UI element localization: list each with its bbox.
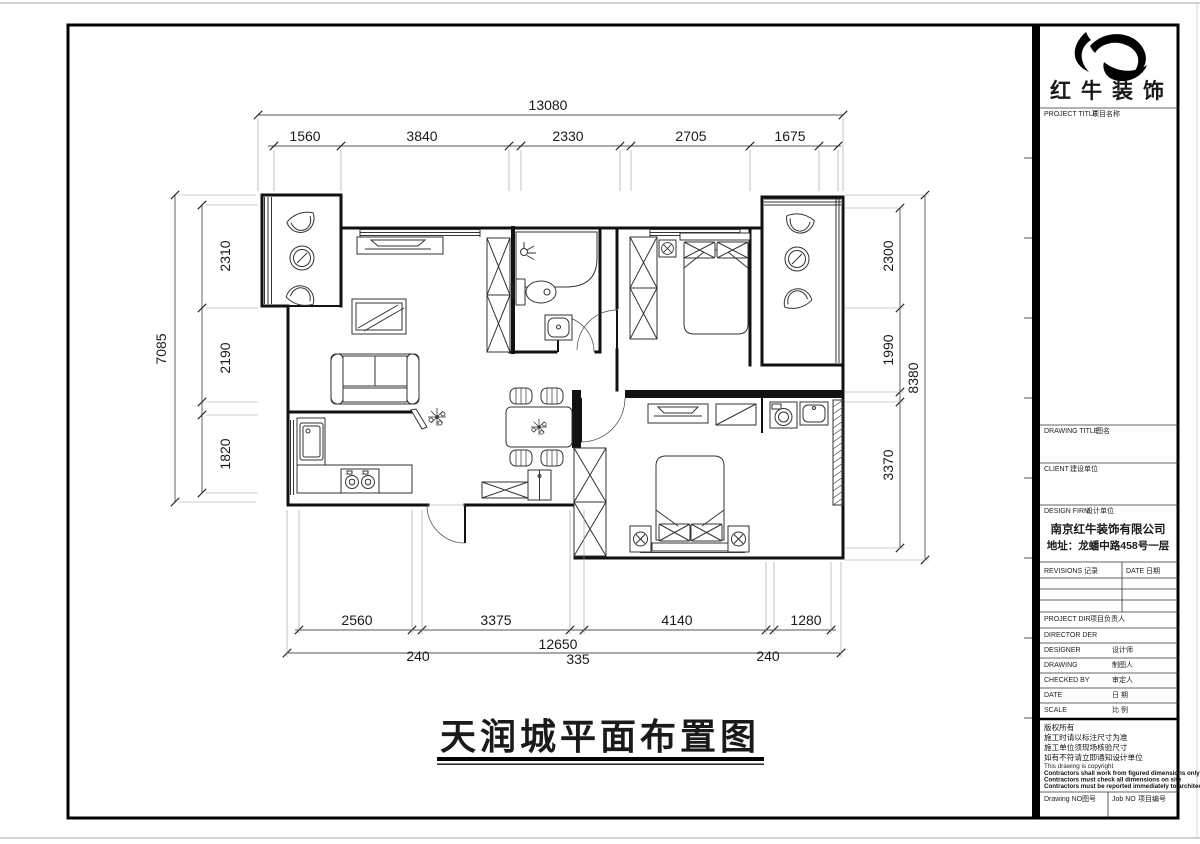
wardrobe [574, 448, 606, 556]
company-name: 南京红牛装饰有限公司 [1051, 522, 1166, 536]
field-date-cn: 日 期 [1112, 691, 1128, 699]
kitchen-sink-icon [300, 423, 323, 460]
toilet-icon [516, 279, 556, 305]
drawing-sheet: 洗衣机 [0, 0, 1200, 844]
bathroom-fixtures: 洗衣机 [510, 232, 597, 340]
laundry-sink-icon [800, 402, 828, 425]
company-address: 地址：龙蟠中路458号一层 [1047, 539, 1170, 552]
lamp-icon [732, 532, 746, 546]
sheet-frame [0, 3, 1200, 838]
living-room-furniture [331, 237, 446, 426]
dim-label: 335 [566, 651, 590, 667]
washer-label: 洗衣机 [510, 283, 516, 299]
dim-label: 3840 [406, 128, 437, 144]
tv-icon [371, 240, 425, 246]
dim-label: 1675 [774, 128, 805, 144]
dimension-right: 8380 2300 1990 3370 [845, 191, 929, 564]
dim-label: 240 [406, 648, 430, 664]
dim-label: 12650 [539, 636, 578, 652]
shower-head-icon [521, 242, 537, 260]
field-date-col-cn: 日期 [1146, 567, 1160, 575]
floor-plan-canvas: 洗衣机 [0, 0, 1200, 844]
dim-label: 2300 [880, 240, 896, 271]
tv-icon [658, 407, 698, 413]
field-date-en: DATE [1044, 692, 1062, 699]
field-drawing-no-cn: 图号 [1082, 795, 1096, 803]
dim-label: 2190 [217, 342, 233, 373]
field-designer-en: DESIGNER [1044, 647, 1081, 654]
field-drawing-no-en: Drawing NO [1044, 796, 1083, 803]
kitchen-fixtures [297, 418, 412, 493]
field-drawing-en: DRAWING [1044, 662, 1078, 669]
washing-machine-icon [770, 402, 797, 428]
dim-label: 240 [756, 648, 780, 664]
field-drawing-title-en: DRAWING TITLE [1044, 428, 1099, 435]
bed [680, 233, 750, 334]
field-project-dir-en: PROJECT DIR [1044, 616, 1091, 623]
coffee-table [352, 299, 406, 334]
dim-label: 3370 [880, 449, 896, 480]
armchair-icon [781, 286, 813, 312]
kitchen-door-leaf [411, 409, 427, 429]
armchair-icon [285, 209, 318, 236]
lamp-icon [634, 532, 648, 546]
dim-label: 1280 [790, 612, 821, 628]
dim-label: 2705 [675, 128, 706, 144]
dim-label: 13080 [529, 97, 568, 113]
field-date-col-en: DATE [1126, 568, 1144, 575]
armchair-icon [784, 212, 815, 236]
field-scale-cn: 比 例 [1112, 705, 1128, 714]
field-drawing-cn: 制图人 [1112, 660, 1133, 669]
dim-label: 4140 [661, 612, 692, 628]
brand-logo [1075, 32, 1147, 81]
note-line: 如有不符请立即通知设计单位 [1044, 752, 1143, 762]
dim-label: 3375 [480, 612, 511, 628]
dim-label: 2560 [341, 612, 372, 628]
field-client-en: CLIENT [1044, 466, 1070, 473]
dim-label: 1820 [217, 438, 233, 469]
dining-set [506, 388, 572, 466]
note-line: Contractors must be reported immediately… [1044, 783, 1200, 790]
dim-label: 1990 [880, 334, 896, 365]
shower-area [516, 232, 597, 287]
basin-icon [545, 315, 572, 340]
field-drawing-title-cn: 图名 [1096, 426, 1110, 435]
dimension-left: 7085 2310 2190 1820 [153, 191, 258, 506]
balcony-left-furniture [285, 209, 318, 308]
shoe-cabinet [482, 470, 551, 500]
brand-name: 红牛装饰 [1050, 79, 1174, 103]
titleblock-divider-bar [1032, 25, 1040, 818]
dim-label: 2310 [217, 240, 233, 271]
stove-icon [341, 469, 379, 493]
field-job-no-en: Job NO [1112, 796, 1136, 803]
title-block: 红牛装饰 PROJECT TITLE 项目名称 DRAWING TITLE 图名… [1040, 32, 1200, 818]
bed [652, 456, 728, 551]
field-checked-cn: 审定人 [1112, 675, 1133, 684]
note-line: This drawing is copyright [1044, 763, 1114, 770]
field-design-firm-cn: 设计单位 [1086, 506, 1114, 515]
round-table-icon [290, 246, 314, 270]
border-ruler-ticks [1024, 158, 1032, 718]
field-designer-cn: 设计师 [1112, 645, 1133, 654]
lamp-icon [662, 243, 674, 255]
note-line: 施工时请以标注尺寸为准 [1044, 732, 1128, 742]
field-project-title-cn: 项目名称 [1092, 109, 1120, 118]
plan-title: 天润城平面布置图 [437, 716, 764, 765]
wall-mid [625, 390, 843, 398]
field-scale-en: SCALE [1044, 707, 1067, 714]
dim-label: 1560 [289, 128, 320, 144]
plant-icon [428, 408, 446, 426]
round-table-icon [785, 247, 809, 271]
note-line: 施工单位须现场核验尺寸 [1044, 742, 1128, 752]
field-job-no-cn: 项目编号 [1138, 794, 1166, 803]
field-revisions-cn: 记录 [1084, 567, 1098, 575]
dimension-bottom: 2560 3375 4140 1280 12650 240 335 240 [283, 510, 845, 667]
wall-corridor [572, 390, 581, 448]
note-line: 版权所有 [1044, 722, 1075, 732]
dim-label: 2330 [552, 128, 583, 144]
hall-closet [487, 238, 510, 352]
field-design-firm-en: DESIGN FIRM [1044, 508, 1090, 515]
bedroom2-furniture [574, 402, 828, 556]
field-project-dir-cn: 项目负责人 [1090, 614, 1125, 623]
field-director-en: DIRECTOR DER [1044, 632, 1097, 639]
field-client-cn: 建设单位 [1070, 464, 1098, 473]
wardrobe [630, 237, 657, 339]
field-revisions-en: REVISIONS [1044, 568, 1082, 575]
dim-label: 8380 [905, 362, 921, 393]
armchair-icon [285, 283, 317, 309]
dim-label: 7085 [153, 333, 169, 364]
field-checked-en: CHECKED BY [1044, 677, 1090, 684]
desk [716, 404, 756, 425]
bedroom1-furniture [630, 233, 750, 339]
field-project-title-en: PROJECT TITLE [1044, 111, 1098, 118]
sofa [331, 354, 419, 404]
dimension-top: 13080 1560 3840 2330 2705 1675 [254, 97, 847, 191]
balcony-right-furniture [781, 212, 815, 311]
page-title: 天润城平面布置图 [440, 716, 760, 757]
floor-plan: 洗衣机 [262, 195, 843, 558]
